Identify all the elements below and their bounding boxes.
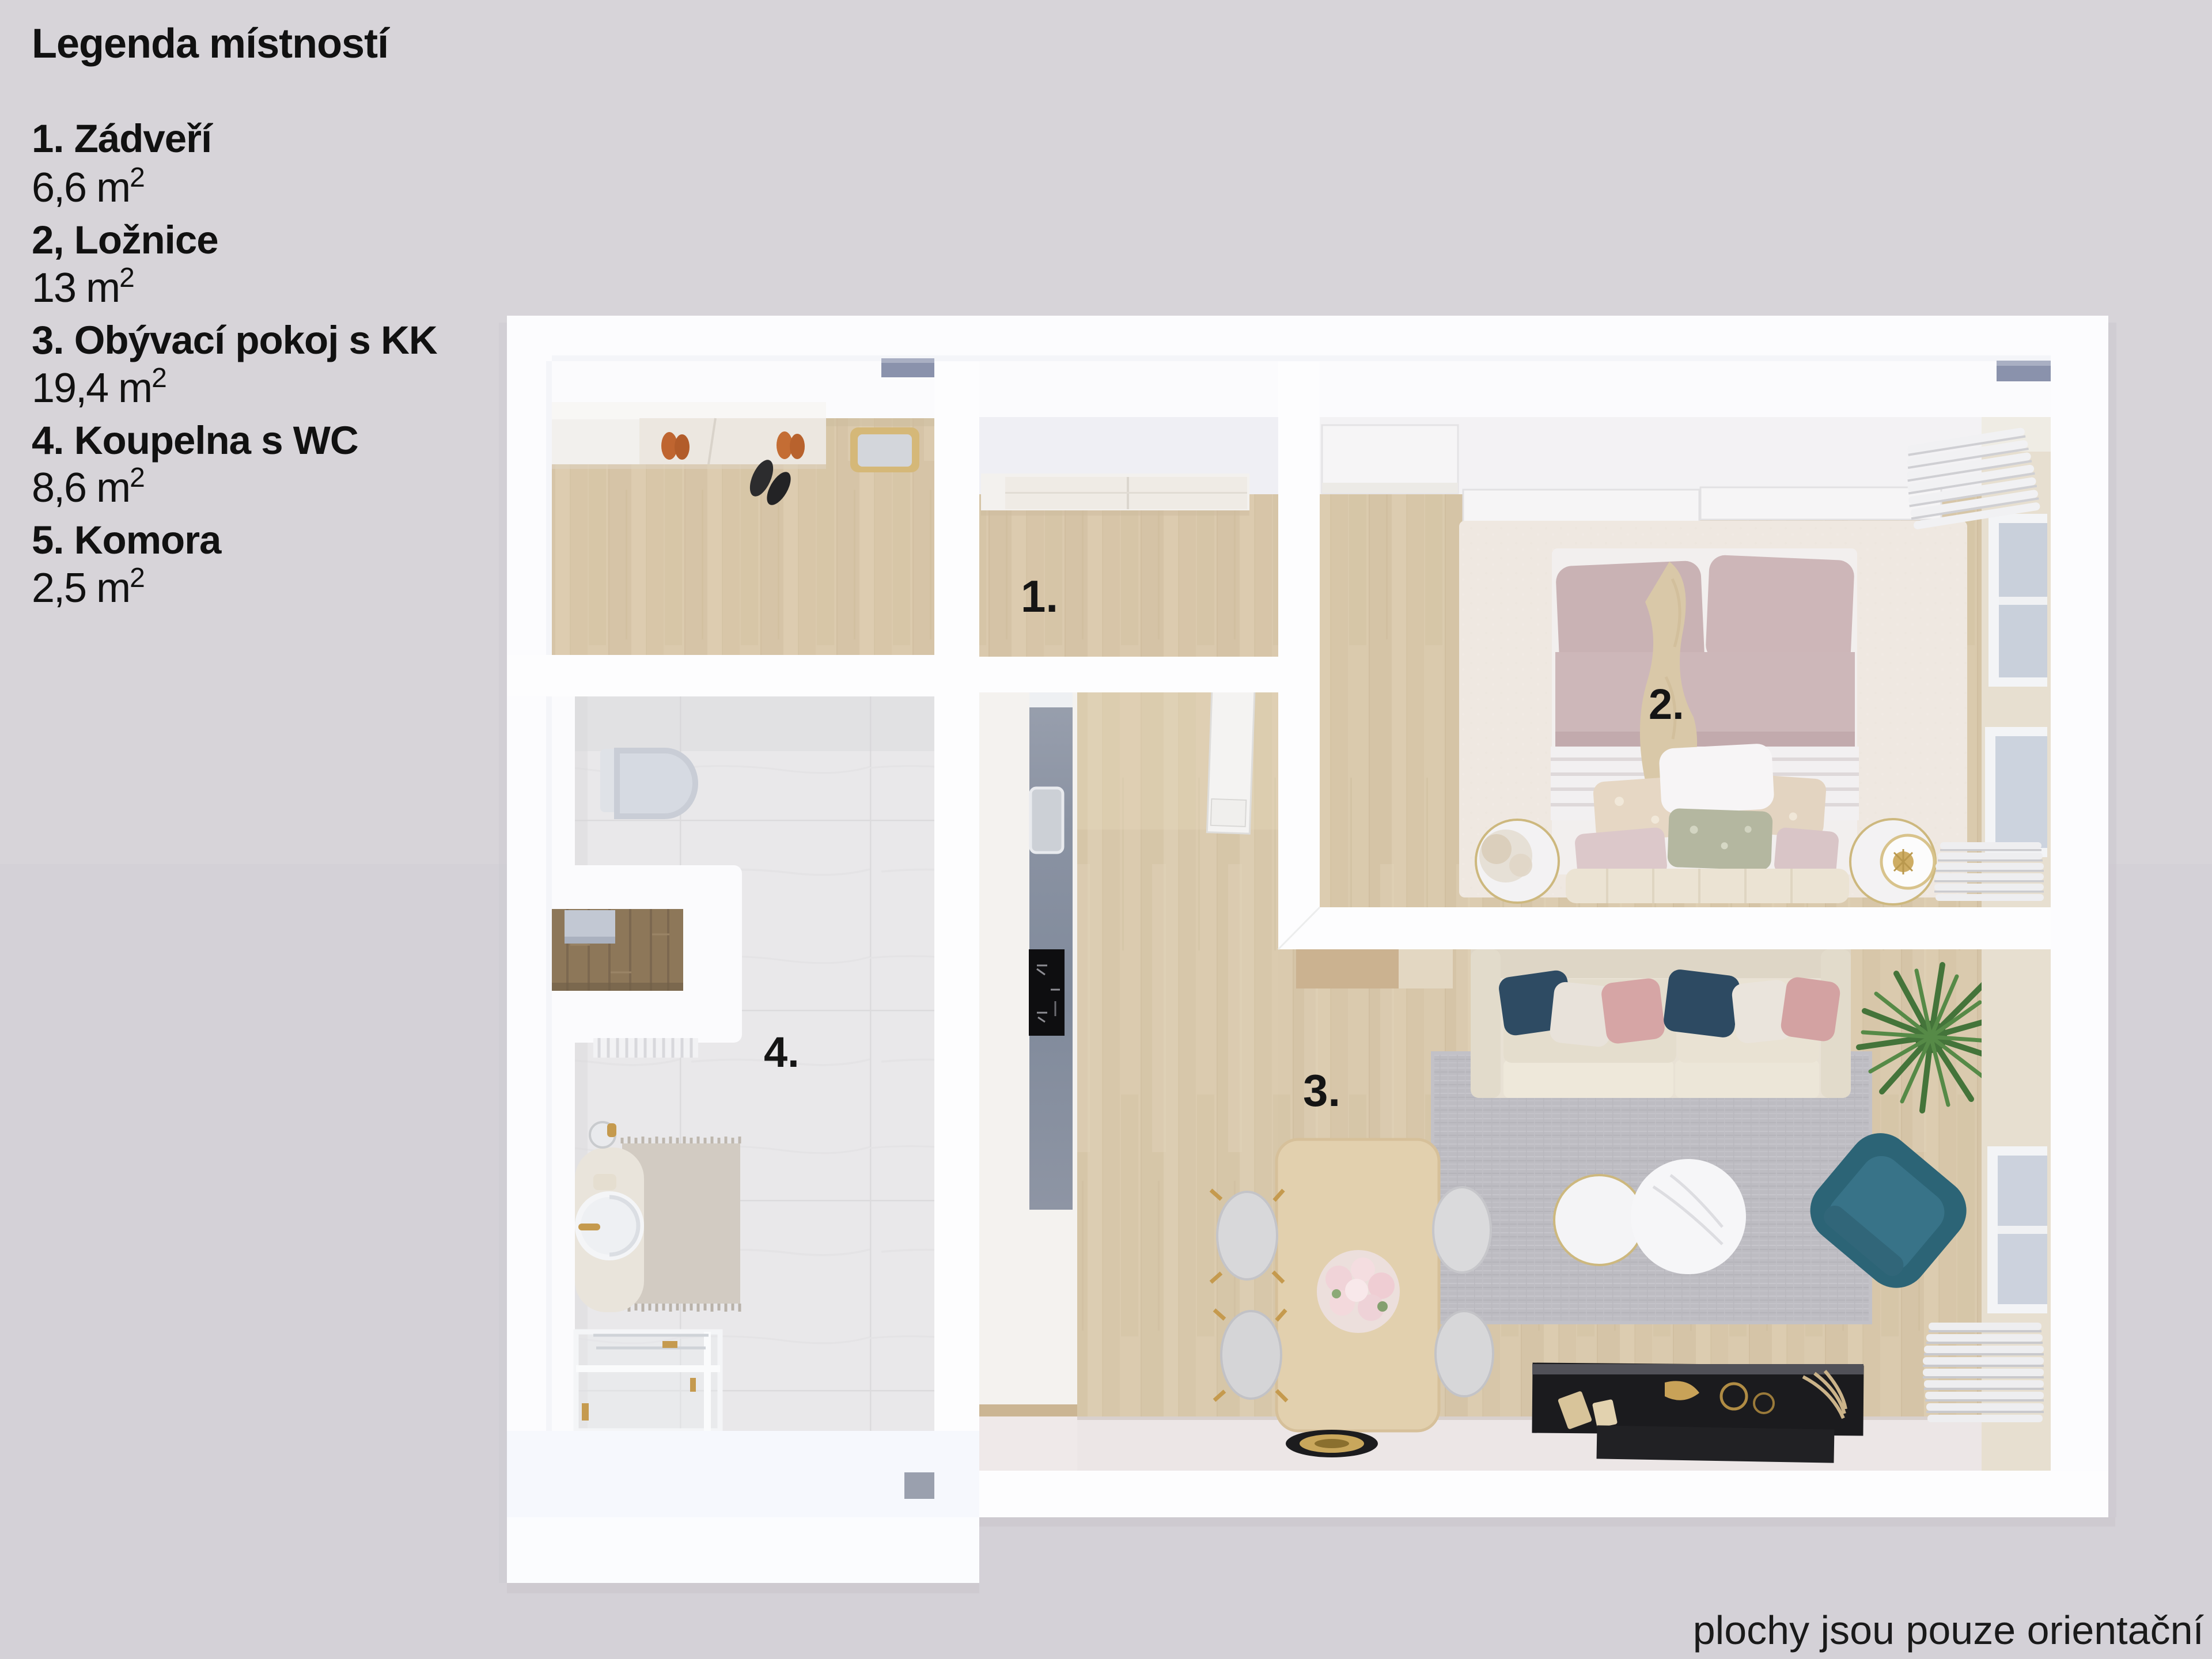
svg-text:5. Komora: 5. Komora <box>32 518 222 562</box>
svg-text:1.: 1. <box>1021 571 1058 622</box>
svg-text:Legenda místností: Legenda místností <box>32 21 390 67</box>
svg-text:2.: 2. <box>1649 680 1684 728</box>
svg-text:4. Koupelna s WC: 4. Koupelna s WC <box>32 418 358 463</box>
svg-text:13 m2: 13 m2 <box>32 263 134 311</box>
svg-text:1. Zádveří: 1. Zádveří <box>32 116 214 161</box>
svg-text:3. Obývací pokoj s KK: 3. Obývací pokoj s KK <box>32 318 438 362</box>
svg-text:19,4 m2: 19,4 m2 <box>32 363 166 411</box>
svg-text:plochy jsou pouze orientační: plochy jsou pouze orientační <box>1693 1608 2205 1653</box>
svg-text:8,6 m2: 8,6 m2 <box>32 463 144 511</box>
svg-text:4.: 4. <box>764 1028 800 1076</box>
svg-text:6,6 m2: 6,6 m2 <box>32 162 144 211</box>
svg-text:2,5 m2: 2,5 m2 <box>32 563 144 611</box>
svg-text:2, Ložnice: 2, Ložnice <box>32 218 218 262</box>
svg-text:3.: 3. <box>1303 1065 1340 1116</box>
